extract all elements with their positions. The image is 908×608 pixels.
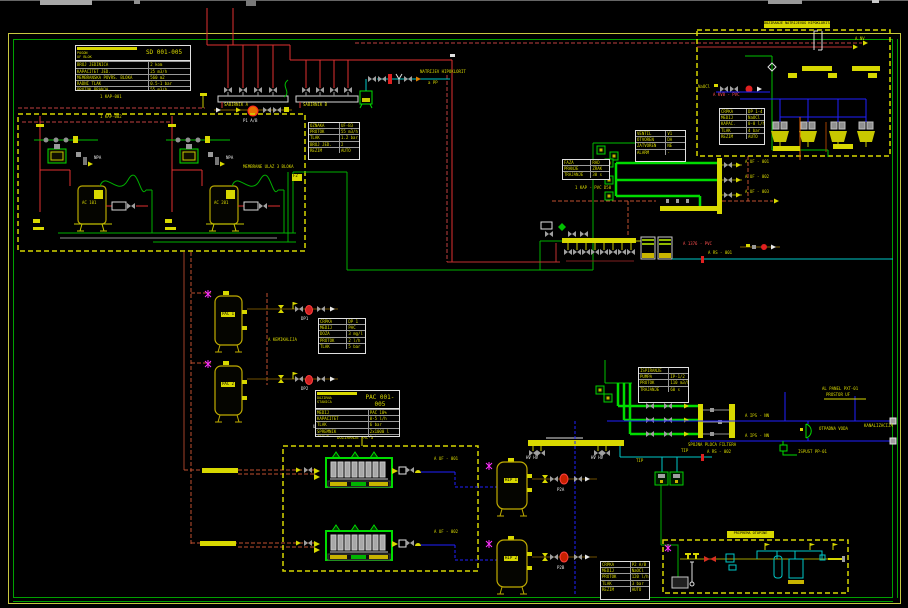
level-gauge <box>690 562 694 586</box>
table-row: CRPKADP 1 <box>319 319 365 324</box>
uf-skid-2 <box>296 525 497 560</box>
table-row: REZIMAUTO <box>601 586 649 592</box>
red-valve <box>388 74 392 84</box>
table-row: BROJ JEDINICA2 kom <box>76 61 190 67</box>
header-label: SABIRNIK B <box>303 103 327 107</box>
table-header: STANICA <box>317 400 360 404</box>
line-tag: 1 KAP-001 <box>100 95 122 99</box>
table-row: CRPKADP 1-4 <box>720 109 764 114</box>
mix-tank <box>789 559 803 578</box>
table-title: PAC 001-005 <box>361 391 399 408</box>
dosing-tie-in-row <box>740 244 780 250</box>
center-manifold <box>447 222 893 263</box>
hypo-tank-2 <box>486 536 532 594</box>
table-row: ALARM- <box>636 149 685 155</box>
hose-curve <box>284 80 288 97</box>
hopper-symbol <box>360 79 372 108</box>
table-row: RADNI TLAK0.5-1 bar <box>76 80 190 86</box>
line-tag: A IPS - NN <box>745 434 769 438</box>
pump-label: P1 A/B <box>243 119 257 123</box>
pump-label: DP1 <box>301 317 308 321</box>
red-valve <box>704 556 716 562</box>
table-row: ZATVORENNE <box>636 142 685 148</box>
day-tank-2 <box>658 237 672 259</box>
line-tag: A RS - 001 <box>708 251 732 255</box>
hypo-manifold-bar <box>528 440 624 446</box>
flow-arrow-left <box>416 77 421 82</box>
line-tag: A NV <box>855 37 865 41</box>
table-row: KAPACITET JED.25 m3/h <box>76 68 190 74</box>
drain-valve <box>780 441 797 455</box>
valve-label: HV HV <box>526 456 538 460</box>
type-label: TIP <box>636 459 643 463</box>
line-tag: A RS - 002 <box>707 450 731 454</box>
table-row: TLAK1.2 bar <box>309 134 359 140</box>
line-tag: A UF - 001 <box>434 457 458 461</box>
membrane-unit-1 <box>33 116 152 233</box>
instrument-label: NPA <box>94 156 101 160</box>
manifold-valve-drops <box>564 243 635 261</box>
table-row: PRANJEZRAK <box>563 165 609 171</box>
hypo-pump-row-1 <box>532 474 597 484</box>
junction-label: SPOJNA PLOCA FILTERA <box>688 443 736 447</box>
drain-label: OTPADNA VODA <box>819 427 848 431</box>
pac-pump-table: CRPKADP 1MEDIJPACDOZA3 mg/lPROTOK2 l/hTL… <box>318 318 366 354</box>
tank-tag: PAC 2 <box>221 382 235 387</box>
uf-manifold-bar <box>717 158 722 214</box>
membrane-label: MEMBRANE ULAZ 3 BLOKA <box>243 165 294 169</box>
line-tag: A KV8 - PVC <box>713 93 740 97</box>
table-row: MEDIJNaOCl <box>601 567 649 573</box>
analyzer-1 <box>655 472 668 485</box>
table-row: ISPIRANJE <box>639 368 688 373</box>
line-tag: 1 KAP - PVC D50 <box>575 186 611 190</box>
table-row: PROTOK55 m3/h <box>309 128 359 134</box>
table-row: MEMBRANSKA POVRS. BLOKA560 m2 <box>76 74 190 80</box>
drain-label: KANALIZACIJA <box>864 424 893 428</box>
backwash-table: ISPIRANJEPUMPAIP-1/2PROTOK110 m3/hTRAJAN… <box>638 367 689 403</box>
manifold-bar <box>562 238 636 243</box>
table-row: CRPKE2 kom <box>316 434 399 437</box>
dosing-pump-table: CRPKADP 1-4MEDIJNaOClKAPAC.0-8 l/hTLAK4 … <box>719 108 765 145</box>
dosing-pumps <box>771 122 875 147</box>
line-tag: A 1376 - PVC <box>683 242 712 246</box>
tank-tag: HIP 1 <box>504 478 518 483</box>
table-row: TLAK5 bar <box>319 343 365 349</box>
chemical-label: NATRIJEV HIPOKLORIT <box>420 70 466 74</box>
line-tag: A UF - 002 <box>434 530 458 534</box>
table-row: MEDIJPAC 10% <box>316 409 399 415</box>
panel-label: AL PANEL PXT-01 <box>822 387 858 391</box>
sd-title-table: POGON UF BLOK SD 001-005 BROJ JEDINICA2 … <box>75 45 191 91</box>
uf-skid-1 <box>296 452 497 487</box>
drain-funnel <box>800 424 811 438</box>
line-tag: A UF - 001 <box>745 160 769 164</box>
table-row: KAPAC.0-8 l/h <box>720 120 764 126</box>
table-row: PROTOK PRANJA55 m3/h <box>76 86 190 91</box>
hypo-pump-table: CRPKAP2 A/BMEDIJNaOClPROTOK120 l/hTLAK3 … <box>600 561 650 600</box>
header-label: SABIRNIK A <box>224 103 248 107</box>
table-row: PUMPAIP-1/2 <box>639 373 688 379</box>
table-row: TLAK6 bar <box>316 421 399 427</box>
valve-label: HV HV <box>591 456 603 460</box>
panel-label: PROSTOR UF <box>826 393 850 397</box>
analyzer-2 <box>670 472 683 485</box>
box-title-prep: PRIPREMA OTOPINE <box>727 531 774 538</box>
chemical-label: A KEMIKALIJA <box>268 338 297 342</box>
day-tank-1 <box>641 237 655 259</box>
table-row: CRPKAP2 A/B <box>601 562 649 567</box>
pac-title-table: DOZIRNA STANICA PAC 001-005 MEDIJPAC 10%… <box>315 390 400 437</box>
table-row: MEDIJNaOCl <box>720 114 764 120</box>
line-tag: A UF - 002 <box>745 175 769 179</box>
table-row: BROJ JED.2 <box>309 141 359 147</box>
table-title: SD 001-005 <box>138 46 190 60</box>
pac-tank-1 <box>205 290 247 352</box>
vessel-tag: AC 201 <box>214 201 228 205</box>
table-row: OTVORENDA <box>636 136 685 142</box>
sample-drains <box>620 446 712 472</box>
f2-tag: F2 <box>292 174 299 179</box>
phase-table: FAZARADPRANJEZRAKTRAJANJE30 s <box>562 159 610 180</box>
table-row: SPREMNIK2x1000 l <box>316 428 399 434</box>
green-transfer-route <box>293 143 593 270</box>
pac-pump-row-1 <box>247 302 338 315</box>
pump-label: DP2 <box>301 387 308 391</box>
box-title-naocl: DOZIRANJE NATRIJEVOG HIPOKLORITA <box>764 21 830 28</box>
table-row: FAZARAD <box>563 160 609 165</box>
pid-diagram <box>0 0 908 608</box>
table-row: TLAK4 bar <box>720 127 764 133</box>
table-row: PROTOK120 l/h <box>601 573 649 579</box>
table-row: MEDIJPAC <box>319 324 365 330</box>
drain-label: ISPUST PP-01 <box>798 450 827 454</box>
uf-spec-table: OZNAKAUF-B3PROTOK55 m3/hTLAK1.2 barBROJ … <box>308 122 360 160</box>
table-row: REZIMAUTO <box>720 133 764 139</box>
membrane-unit-2 <box>165 116 284 233</box>
tank-tag: PAC 1 <box>221 312 235 317</box>
line-connector <box>890 438 896 444</box>
instrument-label: NPA <box>226 156 233 160</box>
table-header: UF BLOK <box>77 55 137 59</box>
header-valves <box>224 87 352 96</box>
pump-label: P2A <box>557 488 564 492</box>
pump-label: P2B <box>557 566 564 570</box>
table-row: TRAJANJE60 s <box>639 386 688 392</box>
cad-drawing-canvas[interactable]: 1 KAP-001 1 KAP-002 AC 101 AC 201 NPA NP… <box>0 0 908 608</box>
hypo-pump-row-2 <box>532 552 597 562</box>
line-tag: a PP <box>428 81 438 85</box>
prep-box <box>661 540 848 593</box>
table-row: TLAK3 bar <box>601 580 649 586</box>
pac-tank-2 <box>205 360 247 422</box>
uf-skid-box <box>283 437 497 571</box>
pac-pump-row-2 <box>247 372 338 385</box>
table-row: DOZA3 mg/l <box>319 330 365 336</box>
table-row: PROTOK110 m3/h <box>639 379 688 385</box>
valve-status-table: VENTILV1OTVORENDAZATVORENNEALARM- <box>635 130 686 162</box>
table-row: REZIMAUTO <box>309 147 359 153</box>
chemical-label: NaOCl <box>698 85 710 89</box>
uf-manifold-valves <box>722 162 742 198</box>
table-row: OZNAKAUF-B3 <box>309 123 359 128</box>
table-row: TRAJANJE30 s <box>563 171 609 177</box>
line-tag: A IPS - NN <box>745 414 769 418</box>
junction-mark <box>450 54 455 57</box>
table-row: KAPACITET0-5 l/h <box>316 415 399 421</box>
line-tag: 1 KAP-002 <box>100 115 122 119</box>
table-row: VENTILV1 <box>636 131 685 136</box>
table-row: PROTOK2 l/h <box>319 337 365 343</box>
membrane-block-box <box>18 114 305 251</box>
line-tag: A UF - 003 <box>745 190 769 194</box>
vessel-tag: AC 101 <box>82 201 96 205</box>
drawing-frame <box>9 34 901 604</box>
type-label: TIP <box>681 449 688 453</box>
tank-tag: HIP 2 <box>504 556 518 561</box>
